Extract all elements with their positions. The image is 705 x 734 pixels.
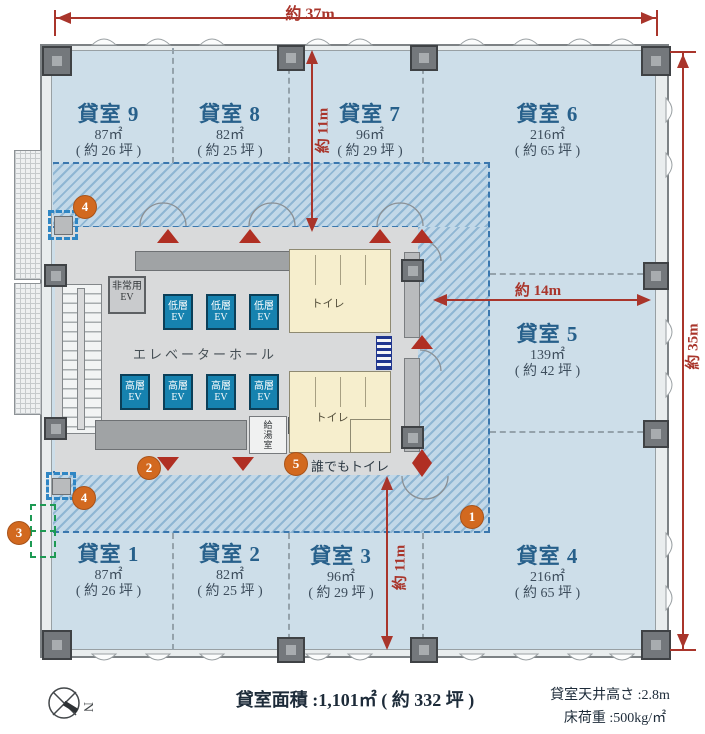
room-label-6: 貸室 6 216㎡ ( 約 65 坪 )	[455, 98, 640, 160]
structural-column	[42, 46, 72, 76]
room-tsubo: ( 約 65 坪 )	[455, 586, 640, 602]
structural-column	[277, 637, 305, 663]
toilet-stall-divider	[315, 255, 316, 285]
structural-column	[42, 630, 72, 660]
room-name: 貸室 8	[172, 98, 288, 128]
structural-column	[44, 417, 67, 440]
structural-column	[44, 264, 67, 287]
accessible-toilet-room	[350, 419, 391, 453]
floor-load-text: 床荷重 :500kg/㎡	[530, 707, 700, 727]
room-tsubo: ( 約 65 坪 )	[455, 144, 640, 160]
elevator-hall-label: エレベーターホール	[125, 344, 285, 363]
room-area: 216㎡	[455, 128, 640, 144]
room-tsubo: ( 約 25 坪 )	[172, 584, 288, 600]
lease-boundary-line	[53, 162, 490, 164]
hatch-band-top	[53, 163, 490, 227]
room-name: 貸室 3	[281, 540, 401, 570]
staircase-handrail	[77, 288, 85, 430]
exterior-stair-mesh	[14, 283, 42, 415]
low-rise-elevator: 低層EV	[206, 294, 236, 330]
toilet-stall-divider	[365, 255, 366, 285]
total-area-text: 貸室面積 :1,101㎡ ( 約 332 坪 )	[160, 686, 550, 712]
highlight-box-green-lower	[30, 530, 56, 558]
high-rise-elevator: 高層EV	[163, 374, 193, 410]
structural-column	[410, 637, 438, 663]
toilet-stall-divider	[365, 377, 366, 407]
kitchenette-label: 給湯室	[262, 420, 275, 450]
structural-column	[643, 262, 669, 290]
high-rise-elevator: 高層EV	[206, 374, 236, 410]
hatch-band-bottom	[53, 473, 490, 533]
room-label-2: 貸室 2 82㎡ ( 約 25 坪 )	[172, 538, 288, 600]
high-rise-elevator: 高層EV	[120, 374, 150, 410]
marker-3: 3	[7, 521, 31, 545]
marker-2: 2	[137, 456, 161, 480]
dim-label-35m: 約 35m	[682, 297, 703, 397]
room-area: 216㎡	[455, 570, 640, 586]
ceiling-height-text: 貸室天井高さ :2.8m	[520, 684, 700, 704]
toilet-stall-divider	[340, 377, 341, 407]
compass-icon: N	[49, 688, 95, 718]
low-rise-elevator: 低層EV	[163, 294, 193, 330]
toilet-room-upper: トイレ	[289, 249, 391, 333]
low-rise-elevator: 低層EV	[249, 294, 279, 330]
core-wall	[135, 251, 297, 271]
room-tsubo: ( 約 25 坪 )	[172, 144, 288, 160]
exterior-stair-mesh	[14, 150, 42, 280]
room-area: 82㎡	[172, 128, 288, 144]
lease-boundary-line	[53, 531, 490, 533]
room-label-8: 貸室 8 82㎡ ( 約 25 坪 )	[172, 98, 288, 160]
room-area: 87㎡	[45, 128, 172, 144]
equipment-box	[52, 478, 71, 495]
room-label-9: 貸室 9 87㎡ ( 約 26 坪 )	[45, 98, 172, 160]
core-wall	[95, 420, 247, 450]
highlight-box-blue-upper	[48, 210, 78, 240]
structural-column	[641, 46, 671, 76]
room-divider	[490, 431, 653, 433]
room-divider	[422, 533, 424, 650]
accessible-toilet-label: 誰でもトイレ	[311, 456, 389, 475]
room-area: 87㎡	[45, 568, 172, 584]
marker-1: 1	[460, 505, 484, 529]
room-name: 貸室 5	[455, 318, 640, 348]
room-area: 96㎡	[281, 570, 401, 586]
room-name: 貸室 6	[455, 98, 640, 128]
room-label-4: 貸室 4 216㎡ ( 約 65 坪 )	[455, 540, 640, 602]
dim-label-11m-upper: 約 11m	[312, 81, 333, 181]
room-label-5: 貸室 5 139㎡ ( 約 42 坪 )	[455, 318, 640, 380]
room-name: 貸室 2	[172, 538, 288, 568]
kitchenette-room: 給湯室	[249, 416, 287, 454]
room-divider	[490, 273, 653, 275]
room-area: 139㎡	[455, 348, 640, 364]
marker-5: 5	[284, 452, 308, 476]
high-rise-elevator: 高層EV	[249, 374, 279, 410]
structural-column	[401, 426, 424, 449]
toilet-stall-divider	[340, 255, 341, 285]
room-name: 貸室 1	[45, 538, 172, 568]
emergency-elevator: 非常用EV	[108, 276, 146, 314]
marker-4-upper: 4	[73, 195, 97, 219]
service-shaft	[376, 336, 392, 370]
toilet-stall-divider	[315, 377, 316, 407]
toilet-label: トイレ	[298, 295, 358, 311]
room-tsubo: ( 約 26 坪 )	[45, 584, 172, 600]
structural-column	[277, 45, 305, 71]
room-name: 貸室 4	[455, 540, 640, 570]
room-tsubo: ( 約 26 坪 )	[45, 144, 172, 160]
dim-label-11m-lower: 約 11m	[389, 518, 410, 618]
structural-column	[643, 420, 669, 448]
room-label-1: 貸室 1 87㎡ ( 約 26 坪 )	[45, 538, 172, 600]
structural-column	[641, 630, 671, 660]
dim-label-14m: 約 14m	[478, 279, 598, 300]
equipment-box	[54, 216, 73, 235]
toilet-room-lower: トイレ	[289, 371, 391, 453]
room-name: 貸室 9	[45, 98, 172, 128]
highlight-box-green-upper	[30, 504, 56, 532]
compass-north-label: N	[80, 702, 95, 712]
room-area: 82㎡	[172, 568, 288, 584]
room-tsubo: ( 約 29 坪 )	[281, 586, 401, 602]
structural-column	[401, 259, 424, 282]
floor-plan: 非常用EV 低層EV 低層EV 低層EV エレベーターホール 高層EV 高層EV…	[0, 0, 705, 734]
room-label-3: 貸室 3 96㎡ ( 約 29 坪 )	[281, 540, 401, 602]
marker-4-lower: 4	[72, 486, 96, 510]
dim-label-37m: 約 37m	[250, 0, 370, 24]
room-tsubo: ( 約 42 坪 )	[455, 364, 640, 380]
structural-column	[410, 45, 438, 71]
